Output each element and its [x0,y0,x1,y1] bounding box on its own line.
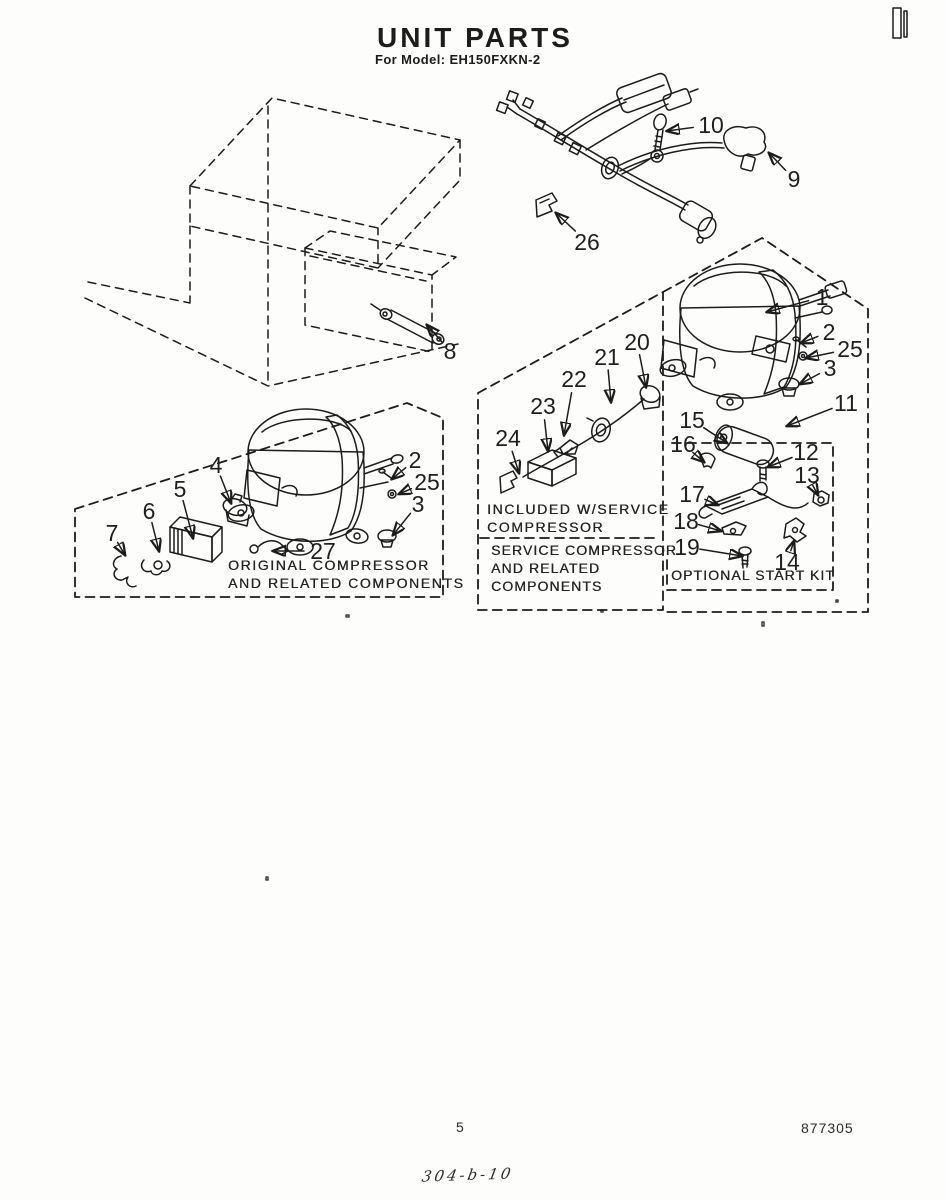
wiring-harness-drawing [497,72,766,243]
callout-number: 21 [594,344,620,370]
callout-22: 22 [561,366,587,435]
callout-number: 17 [679,481,705,507]
scan-specks [266,600,838,880]
callout-arrow [801,336,818,343]
callout-18: 18 [673,508,721,534]
callout-number: 4 [210,452,223,478]
callout-arrow [556,213,575,231]
callout-10: 10 [667,112,724,138]
callout-20: 20 [624,329,650,387]
callout-number: 3 [412,491,425,517]
callout-4: 4 [210,452,231,503]
callout-number: 6 [143,498,156,524]
callout-21: 21 [594,344,620,402]
callout-number: 23 [530,393,556,419]
callout-arrow [787,408,832,426]
callout-number: 19 [674,534,700,560]
callout-arrow [392,468,406,479]
callout-arrow [700,549,742,556]
callout-7: 7 [106,520,125,555]
callout-number: 8 [444,338,457,364]
callout-19: 19 [674,534,742,560]
callout-17: 17 [679,481,718,507]
callout-26: 26 [556,213,600,255]
callout-number: 26 [574,229,600,255]
callout-arrow [564,393,572,435]
callout-number: 25 [837,336,863,362]
callout-arrow [608,370,611,402]
callout-layer: 1092681225311151612131718191420212223244… [106,112,863,575]
callout-6: 6 [143,498,159,551]
doc-number: 877305 [801,1120,854,1136]
callout-number: 7 [106,520,119,546]
callout-11: 11 [787,390,858,426]
callout-number: 3 [824,355,837,381]
callout-number: 15 [679,407,705,433]
callout-number: 10 [698,112,724,138]
callout-arrow [698,525,721,531]
callout-number: 2 [823,319,836,345]
callout-number: 22 [561,366,587,392]
callout-number: 24 [495,425,521,451]
callout-number: 18 [673,508,699,534]
callout-number: 20 [624,329,650,355]
corner-ink-mark [893,8,907,38]
callout-arrow [512,451,519,473]
callout-24: 24 [495,425,521,473]
callout-number: 5 [174,476,187,502]
callout-number: 9 [788,166,801,192]
callout-16: 16 [670,431,704,462]
callout-1: 1 [767,284,828,312]
callout-arrow [640,355,646,387]
included-parts-drawing [500,383,662,493]
label-optional-start-kit: OPTIONAL START KIT [671,566,835,584]
callout-number: 1 [816,284,829,310]
callout-arrow [667,127,693,131]
label-original-compressor: ORIGINAL COMPRESSOR AND RELATED COMPONEN… [228,556,464,592]
cabinet-outline [85,98,460,386]
callout-arrow [393,513,410,535]
callout-arrow [220,476,231,503]
callout-3: 3 [393,491,424,535]
callout-arrow [152,523,159,551]
callout-arrow [118,542,125,555]
region-borders [75,238,868,612]
callout-2: 2 [801,319,835,345]
label-service-compressor: SERVICE COMPRESSOR AND RELATED COMPONENT… [491,541,677,595]
scanned-manual-page: UNIT PARTS For Model: EH150FXKN-2 [0,0,948,1200]
callout-arrow [399,489,411,494]
callout-9: 9 [769,153,800,192]
parts-diagram: 1092681225311151612131718191420212223244… [0,0,948,1200]
callout-arrow [800,374,819,384]
callout-arrow [545,420,548,451]
callout-number: 13 [794,462,820,488]
callout-arrow [769,153,786,170]
label-included-w-service: INCLUDED W/SERVICE COMPRESSOR [487,500,670,536]
callout-23: 23 [530,393,556,451]
page-number: 5 [456,1119,464,1135]
callout-number: 16 [670,431,696,457]
handwritten-note: 304-b-10 [420,1164,515,1185]
part8-tube-drawing [371,304,446,346]
callout-number: 11 [834,390,858,416]
callout-13: 13 [794,462,820,495]
